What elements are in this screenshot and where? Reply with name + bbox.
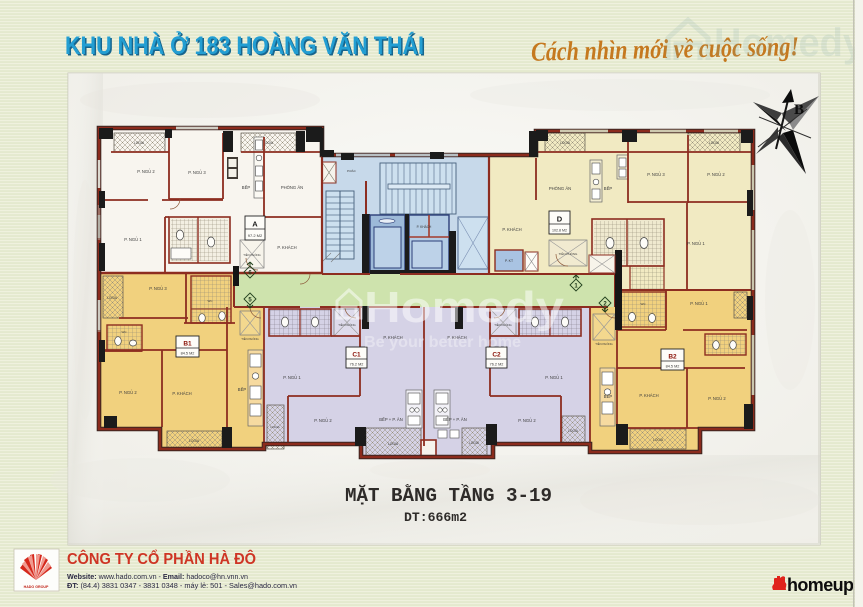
svg-text:TIỀN PHÒNG: TIỀN PHÒNG xyxy=(595,341,612,346)
svg-text:TIỀN PHÒNG: TIỀN PHÒNG xyxy=(241,336,258,341)
svg-text:P. KHÁCH: P. KHÁCH xyxy=(172,391,191,396)
svg-text:P. NGỦ 2: P. NGỦ 2 xyxy=(119,390,137,395)
svg-text:LOGIA: LOGIA xyxy=(107,296,118,300)
svg-text:D: D xyxy=(557,215,563,224)
svg-text:LOGIA: LOGIA xyxy=(270,425,279,429)
svg-text:LOGIA: LOGIA xyxy=(469,441,480,445)
svg-text:Be your better home: Be your better home xyxy=(364,334,521,351)
svg-text:PHÒNG ĂN: PHÒNG ĂN xyxy=(549,186,571,191)
svg-text:BẾP: BẾP xyxy=(238,387,247,392)
svg-text:P. KT: P. KT xyxy=(505,259,513,263)
svg-text:P. NGỦ 1: P. NGỦ 1 xyxy=(545,375,563,380)
svg-text:BẾP: BẾP xyxy=(242,185,251,190)
svg-text:102.8 M2: 102.8 M2 xyxy=(552,229,567,233)
svg-text:P. NGỦ 1: P. NGỦ 1 xyxy=(124,237,142,242)
svg-text:P. NGỦ 3: P. NGỦ 3 xyxy=(647,172,665,177)
svg-text:P.RÁC: P.RÁC xyxy=(347,169,357,173)
svg-text:CÔNG TY CỔ PHẦN HÀ ĐÔ: CÔNG TY CỔ PHẦN HÀ ĐÔ xyxy=(67,549,256,568)
svg-text:Homedy: Homedy xyxy=(714,21,863,65)
svg-text:B2: B2 xyxy=(668,354,677,361)
svg-text:C2: C2 xyxy=(492,352,501,359)
svg-text:BẾP + P. ĂN: BẾP + P. ĂN xyxy=(379,417,402,422)
svg-text:84.5 M2: 84.5 M2 xyxy=(666,365,680,369)
svg-text:WC: WC xyxy=(122,330,128,334)
svg-text:BẾP + P. ĂN: BẾP + P. ĂN xyxy=(443,417,466,422)
svg-text:TIỀN PHÒNG: TIỀN PHÒNG xyxy=(559,251,578,256)
svg-text:WC: WC xyxy=(641,302,647,306)
svg-text:MẶT BẰNG TẦNG 3-19: MẶT BẰNG TẦNG 3-19 xyxy=(345,483,552,507)
svg-text:WC: WC xyxy=(208,299,214,303)
svg-text:homeup: homeup xyxy=(787,575,854,595)
svg-text:B: B xyxy=(794,102,804,118)
svg-text:BẾP: BẾP xyxy=(604,186,613,191)
svg-text:LOGIA: LOGIA xyxy=(568,429,579,433)
svg-text:KHU NHÀ Ở 183 HOÀNG VĂN THÁI: KHU NHÀ Ở 183 HOÀNG VĂN THÁI xyxy=(65,30,424,60)
svg-text:C1: C1 xyxy=(352,352,361,359)
svg-text:Website: www.hado.com.vn - E: Website: www.hado.com.vn - Email: hadoco… xyxy=(67,572,248,581)
svg-text:TIỀN PHÒNG: TIỀN PHÒNG xyxy=(338,322,355,327)
svg-text:P. NGỦ 3: P. NGỦ 3 xyxy=(188,170,206,175)
svg-text:P. NGỦ 3: P. NGỦ 3 xyxy=(149,286,167,291)
svg-text:P. NGỦ 1: P. NGỦ 1 xyxy=(690,301,708,306)
svg-text:P. KHÁCH: P. KHÁCH xyxy=(502,227,521,232)
svg-text:B1: B1 xyxy=(183,341,192,348)
svg-text:BẾP: BẾP xyxy=(604,394,613,399)
svg-text:LOGIA: LOGIA xyxy=(560,141,571,145)
svg-text:A: A xyxy=(252,220,258,229)
svg-text:P. NGỦ 2: P. NGỦ 2 xyxy=(708,396,726,401)
svg-text:LOGIA: LOGIA xyxy=(134,141,145,145)
svg-text:PHÒNG ĂN: PHÒNG ĂN xyxy=(281,185,303,190)
svg-text:HADO GROUP: HADO GROUP xyxy=(24,585,49,589)
svg-text:76.2 M2: 76.2 M2 xyxy=(490,363,504,367)
svg-text:TIỀN PHÒNG: TIỀN PHÒNG xyxy=(243,252,260,257)
svg-text:Homedy: Homedy xyxy=(364,283,565,332)
svg-text:P. KHÁCH: P. KHÁCH xyxy=(639,393,658,398)
svg-text:LOGIA: LOGIA xyxy=(189,439,200,443)
svg-text:P. NGỦ 2: P. NGỦ 2 xyxy=(518,418,536,423)
svg-text:DT:666m2: DT:666m2 xyxy=(404,510,467,525)
svg-text:LOGIA: LOGIA xyxy=(653,438,664,442)
svg-text:LOGIA: LOGIA xyxy=(709,141,720,145)
svg-text:P. KHÁCH: P. KHÁCH xyxy=(277,245,296,250)
svg-text:P. KHÁCH: P. KHÁCH xyxy=(417,225,432,229)
svg-text:P. NGỦ 2: P. NGỦ 2 xyxy=(314,418,332,423)
svg-text:P. NGỦ 1: P. NGỦ 1 xyxy=(283,375,301,380)
svg-text:P. NGỦ 2: P. NGỦ 2 xyxy=(137,169,155,174)
svg-text:97.2 M2: 97.2 M2 xyxy=(248,233,263,238)
svg-text:P. NGỦ 1: P. NGỦ 1 xyxy=(687,241,705,246)
svg-text:ĐT: (84.4) 3831 0347 - 3831 03: ĐT: (84.4) 3831 0347 - 3831 0348 - máy l… xyxy=(67,581,297,590)
svg-text:84.5 M2: 84.5 M2 xyxy=(181,352,195,356)
svg-text:P. NGỦ 2: P. NGỦ 2 xyxy=(707,172,725,177)
svg-text:76.2 M2: 76.2 M2 xyxy=(350,363,364,367)
svg-text:LOGIA: LOGIA xyxy=(388,442,399,446)
